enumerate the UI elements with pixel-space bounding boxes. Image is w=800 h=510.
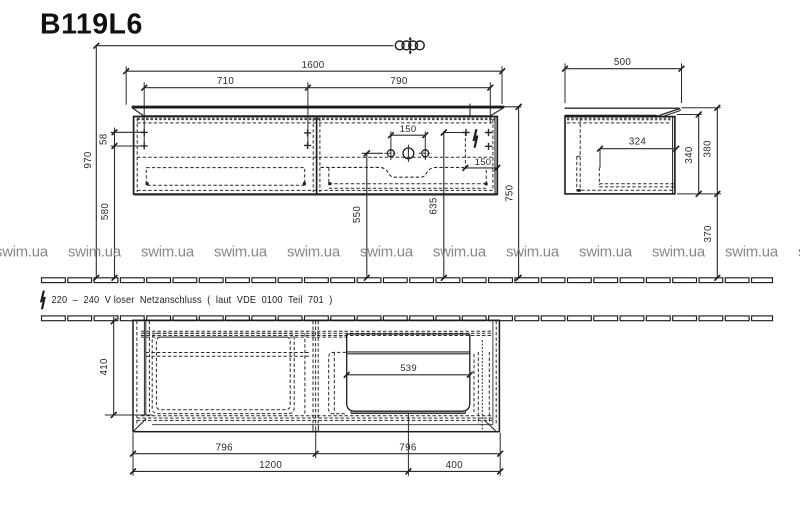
svg-text:710: 710 (217, 76, 234, 87)
svg-text:B119L6: B119L6 (40, 9, 143, 41)
svg-text:swim.ua: swim.ua (433, 245, 487, 261)
svg-text:swim.ua: swim.ua (725, 245, 779, 261)
svg-text:635: 635 (428, 197, 439, 214)
svg-text:swim.ua: swim.ua (506, 245, 560, 261)
svg-text:swim.ua: swim.ua (214, 245, 268, 261)
svg-text:580: 580 (100, 203, 111, 220)
svg-text:1200: 1200 (259, 460, 282, 471)
svg-text:796: 796 (216, 442, 233, 453)
svg-text:324: 324 (629, 137, 646, 148)
svg-text:swim.ua: swim.ua (141, 245, 195, 261)
svg-text:790: 790 (390, 76, 407, 87)
svg-text:750: 750 (504, 184, 515, 201)
svg-text:340: 340 (684, 146, 695, 163)
svg-text:370: 370 (703, 225, 714, 242)
svg-text:swim.ua: swim.ua (68, 245, 122, 261)
svg-text:58: 58 (98, 133, 109, 145)
svg-text:500: 500 (614, 57, 631, 68)
svg-text:swim.ua: swim.ua (360, 245, 414, 261)
svg-text:550: 550 (352, 206, 363, 223)
svg-text:swim.ua: swim.ua (287, 245, 341, 261)
svg-text:150: 150 (475, 157, 492, 168)
svg-text:380: 380 (703, 140, 714, 157)
svg-text:swim.ua: swim.ua (0, 245, 49, 261)
svg-text:400: 400 (446, 460, 463, 471)
svg-text:539: 539 (400, 363, 417, 374)
svg-text:1600: 1600 (302, 60, 325, 71)
svg-text:swim.ua: swim.ua (579, 245, 633, 261)
svg-text:410: 410 (99, 358, 110, 375)
svg-text:150: 150 (400, 124, 417, 135)
svg-text:220 – 240 V loser Netzansc: 220 – 240 V loser Netzanschluss ( laut V… (52, 295, 333, 306)
svg-text:970: 970 (83, 151, 94, 168)
svg-text:swim.ua: swim.ua (652, 245, 706, 261)
